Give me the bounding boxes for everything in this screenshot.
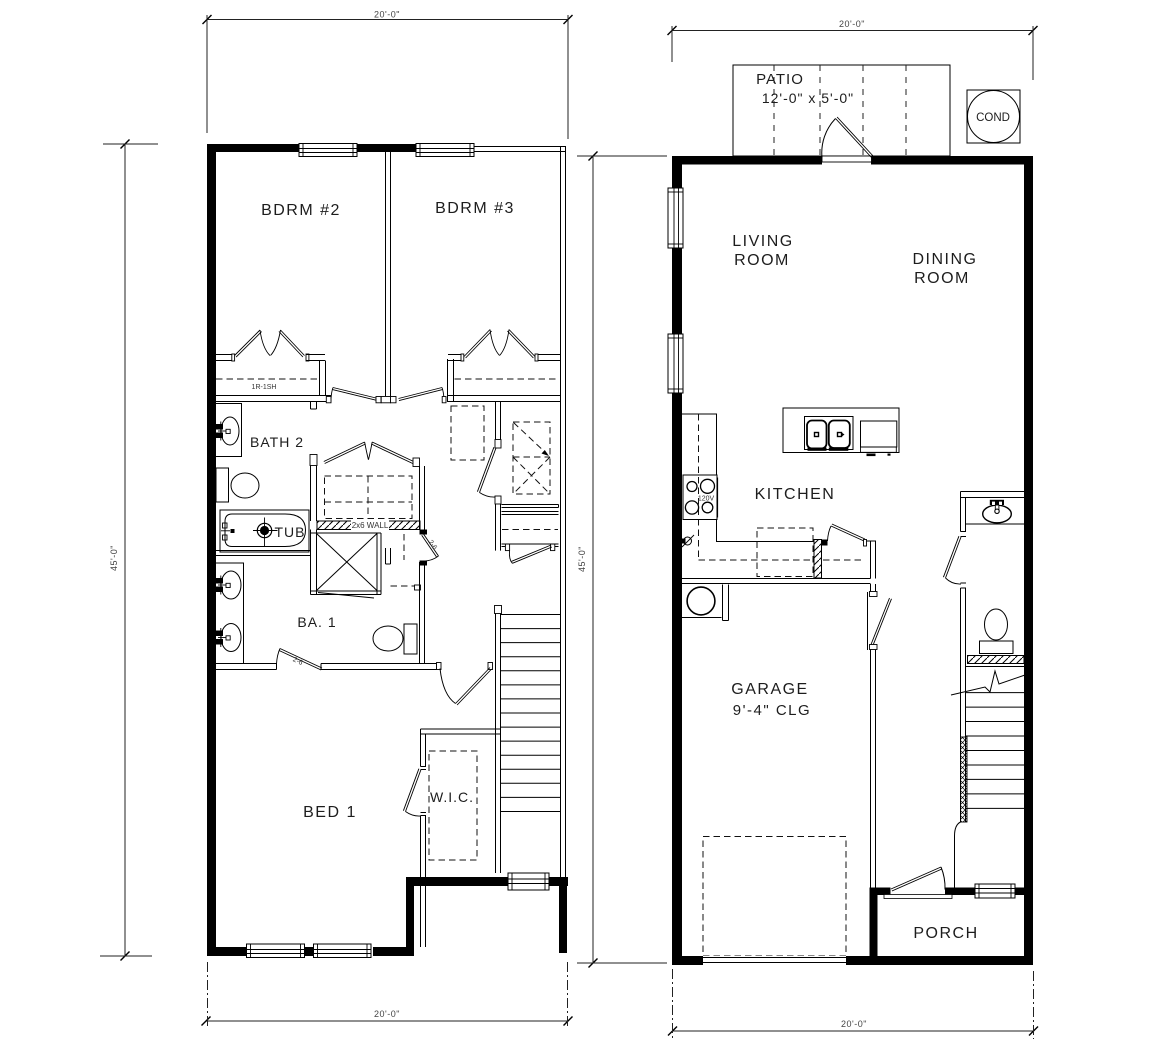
svg-text:W.I.C.: W.I.C. xyxy=(430,789,474,805)
svg-text:20'-0": 20'-0" xyxy=(839,19,865,29)
svg-text:ROOM: ROOM xyxy=(914,270,970,287)
svg-text:20'-0": 20'-0" xyxy=(374,10,400,20)
svg-text:120V: 120V xyxy=(698,496,715,503)
svg-text:DINING: DINING xyxy=(913,251,978,268)
svg-text:KITCHEN: KITCHEN xyxy=(755,486,836,503)
svg-text:BA. 1: BA. 1 xyxy=(297,614,336,630)
svg-text:45'-0": 45'-0" xyxy=(577,546,587,572)
svg-text:9'-4" CLG: 9'-4" CLG xyxy=(733,702,811,719)
svg-text:COND: COND xyxy=(976,112,1010,124)
svg-text:BDRM #3: BDRM #3 xyxy=(435,200,515,217)
svg-text:12'-0" x 5'-0": 12'-0" x 5'-0" xyxy=(762,90,854,106)
svg-text:BDRM #2: BDRM #2 xyxy=(261,202,341,219)
svg-text:PORCH: PORCH xyxy=(913,925,978,942)
svg-text:ROOM: ROOM xyxy=(734,252,790,269)
svg-text:20'-0": 20'-0" xyxy=(374,1009,400,1019)
svg-text:LIVING: LIVING xyxy=(732,233,793,250)
svg-text:GARAGE: GARAGE xyxy=(731,681,808,698)
svg-text:BATH 2: BATH 2 xyxy=(250,434,304,450)
svg-text:1R-1SH: 1R-1SH xyxy=(252,384,277,391)
svg-text:20'-0": 20'-0" xyxy=(841,1019,867,1029)
svg-text:2x6 WALL: 2x6 WALL xyxy=(352,521,389,530)
svg-text:TUB: TUB xyxy=(275,524,306,540)
svg-text:45'-0": 45'-0" xyxy=(109,545,119,571)
svg-text:PATIO: PATIO xyxy=(756,71,804,88)
svg-text:BED 1: BED 1 xyxy=(303,804,357,821)
